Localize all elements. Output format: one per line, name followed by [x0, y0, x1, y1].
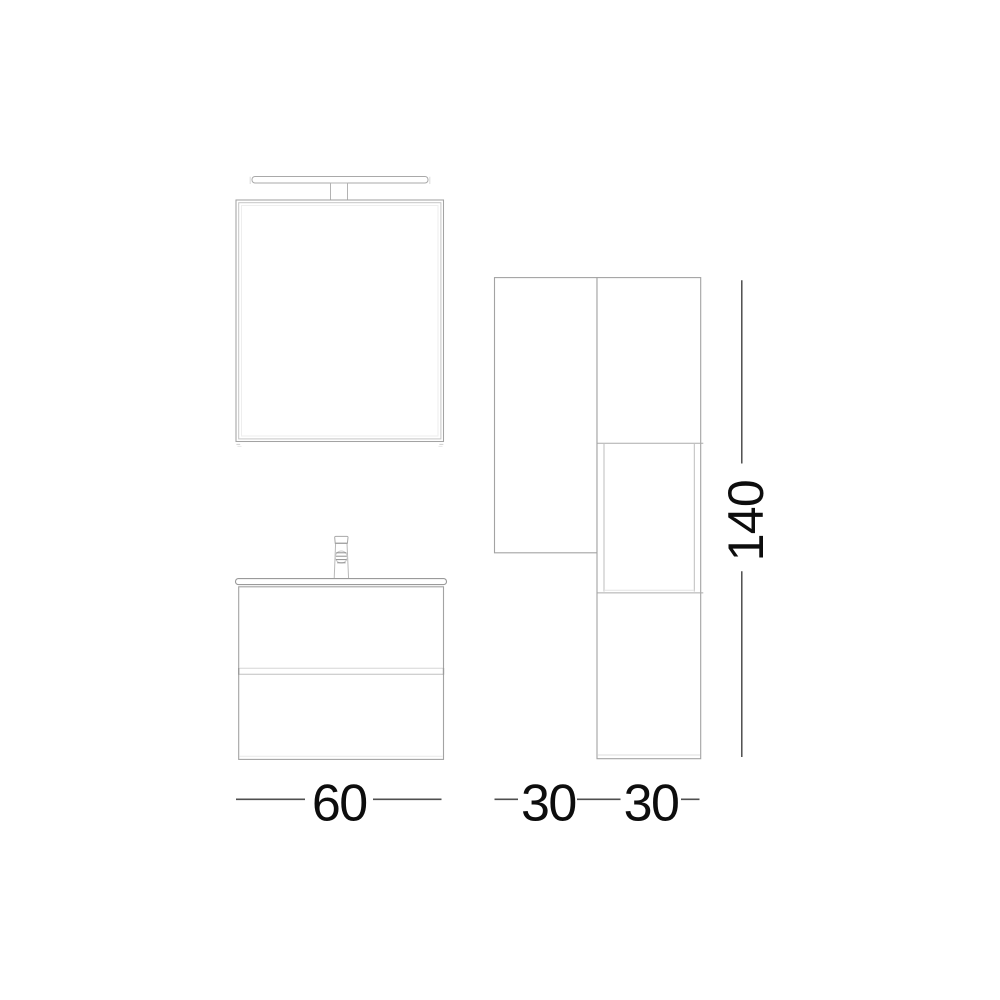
svg-text:30: 30: [521, 775, 576, 833]
svg-text:30: 30: [624, 775, 679, 833]
svg-text:60: 60: [312, 775, 367, 833]
svg-text:140: 140: [718, 480, 774, 561]
